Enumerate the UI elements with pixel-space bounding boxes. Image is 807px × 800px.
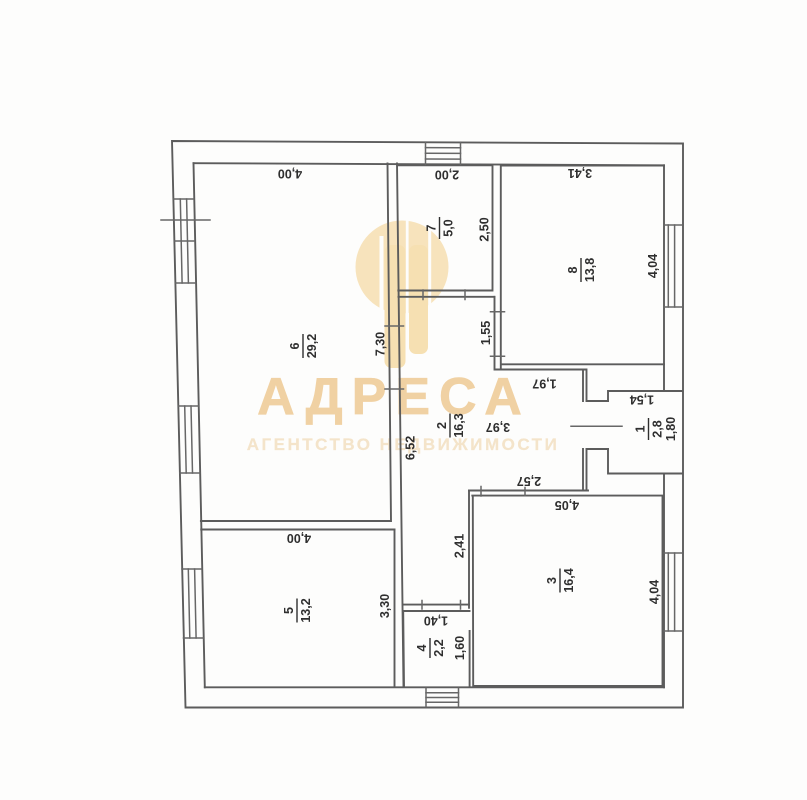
svg-text:3,41: 3,41 — [568, 166, 592, 180]
svg-text:7: 7 — [425, 224, 439, 231]
svg-text:1,97: 1,97 — [532, 377, 556, 391]
svg-text:1,60: 1,60 — [453, 636, 467, 660]
svg-text:4,00: 4,00 — [287, 531, 311, 545]
svg-text:2,50: 2,50 — [478, 217, 492, 241]
svg-text:1,54: 1,54 — [630, 393, 654, 407]
svg-text:1: 1 — [634, 425, 648, 432]
svg-text:13,2: 13,2 — [299, 598, 313, 622]
svg-text:1,40: 1,40 — [424, 614, 448, 628]
svg-text:6,52: 6,52 — [404, 436, 418, 460]
svg-text:16,4: 16,4 — [562, 568, 576, 592]
svg-text:4,05: 4,05 — [555, 498, 579, 512]
svg-text:6: 6 — [288, 342, 302, 349]
svg-text:4,00: 4,00 — [278, 167, 302, 181]
svg-text:2,57: 2,57 — [517, 474, 541, 488]
svg-text:29,2: 29,2 — [305, 334, 319, 358]
svg-text:1,80: 1,80 — [664, 417, 678, 441]
svg-text:3,97: 3,97 — [486, 420, 510, 434]
svg-text:4,04: 4,04 — [648, 580, 662, 604]
svg-text:5,0: 5,0 — [442, 219, 456, 236]
svg-text:16,3: 16,3 — [452, 413, 466, 437]
svg-text:7,30: 7,30 — [374, 332, 388, 356]
svg-text:АДРЕСА: АДРЕСА — [257, 368, 531, 426]
svg-text:8: 8 — [566, 266, 580, 273]
svg-text:4: 4 — [415, 644, 429, 651]
svg-text:2,2: 2,2 — [432, 639, 446, 656]
svg-text:2,8: 2,8 — [651, 420, 665, 437]
svg-text:4,04: 4,04 — [646, 254, 660, 278]
svg-text:2: 2 — [435, 422, 449, 429]
svg-text:5: 5 — [282, 607, 296, 614]
svg-text:1,55: 1,55 — [479, 321, 493, 345]
svg-text:13,8: 13,8 — [583, 258, 597, 282]
svg-text:2,41: 2,41 — [453, 534, 467, 558]
svg-text:2,00: 2,00 — [435, 168, 459, 182]
svg-text:3,30: 3,30 — [378, 594, 392, 618]
svg-text:3: 3 — [545, 577, 559, 584]
